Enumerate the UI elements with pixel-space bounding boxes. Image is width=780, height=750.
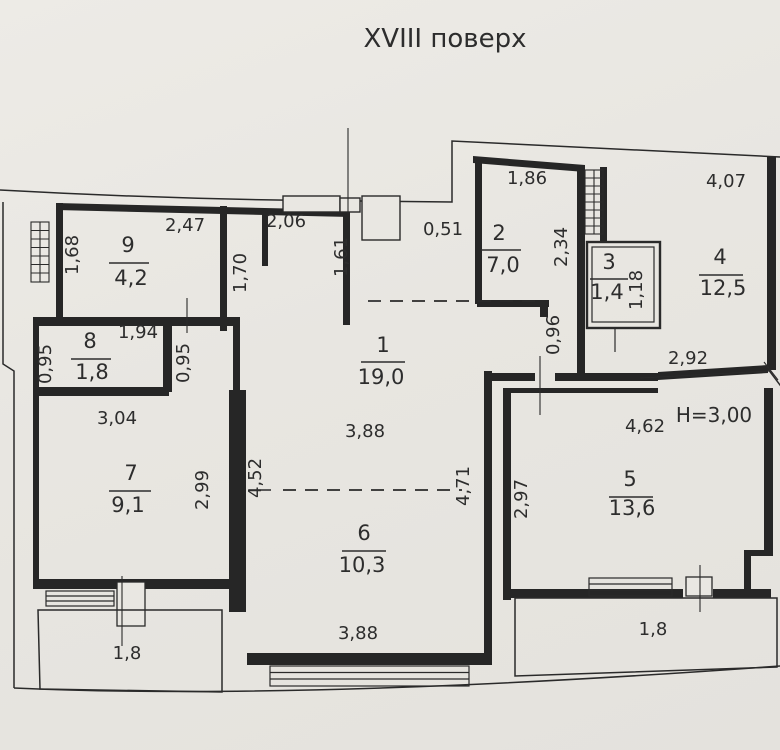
dim-label-d471: 4,71 xyxy=(453,466,474,506)
dim-label-d297: 2,97 xyxy=(511,479,532,519)
room-5-area: 13,6 xyxy=(609,496,656,520)
room-4-number: 4 xyxy=(713,245,726,269)
room-6-area: 10,3 xyxy=(339,553,386,577)
page-title: XVIII поверх xyxy=(364,24,527,54)
floor-plan-drawing: XVIII поверх xyxy=(0,0,780,750)
dim-label-d234: 2,34 xyxy=(551,227,572,267)
room-9-number: 9 xyxy=(121,233,134,257)
dimension-ticks xyxy=(122,128,778,646)
room-4-area: 12,5 xyxy=(700,276,747,300)
dim-label-d462: 4,62 xyxy=(625,416,665,437)
dim-label-d095r: 0,95 xyxy=(173,343,194,383)
balconies xyxy=(38,598,777,692)
dim-label-d206: 2,06 xyxy=(266,211,306,232)
dim-label-d407: 4,07 xyxy=(706,171,746,192)
room-5-number: 5 xyxy=(623,467,636,491)
room-3-area: 1,4 xyxy=(590,280,623,304)
room-7-area: 9,1 xyxy=(111,493,144,517)
shaft-hatch-left xyxy=(31,222,49,282)
dim-label-d051: 0,51 xyxy=(423,219,463,240)
dim-label-d161: 1,61 xyxy=(331,237,352,277)
dim-label-d304: 3,04 xyxy=(97,408,137,429)
dim-label-d247: 2,47 xyxy=(165,215,205,236)
dim-label-d170: 1,70 xyxy=(230,253,251,293)
room-8-area: 1,8 xyxy=(75,360,108,384)
dim-label-d168: 1,68 xyxy=(62,235,83,275)
dim-label-d194: 1,94 xyxy=(118,322,158,343)
dim-label-d388a: 3,88 xyxy=(345,421,385,442)
room-8-number: 8 xyxy=(83,329,96,353)
dim-label-d18r: 1,8 xyxy=(639,619,668,640)
floor-plan-page: XVIII поверх xyxy=(0,0,780,750)
dim-label-d095l: 0,95 xyxy=(35,344,56,384)
room-3-number: 3 xyxy=(602,250,615,274)
dim-label-d096: 0,96 xyxy=(543,315,564,355)
opening-dashes xyxy=(249,301,540,490)
dim-label-d118: 1,18 xyxy=(626,270,647,310)
dim-label-d452: 4,52 xyxy=(245,458,266,498)
room-9-area: 4,2 xyxy=(114,266,147,290)
dim-label-d299: 2,99 xyxy=(192,470,213,510)
floor-height-note: H=3,00 xyxy=(676,403,752,427)
dim-label-d18l: 1,8 xyxy=(113,643,142,664)
room-1-number: 1 xyxy=(376,333,389,357)
room-2-number: 2 xyxy=(492,221,505,245)
room-7-number: 7 xyxy=(124,461,137,485)
dim-label-d186: 1,86 xyxy=(507,168,547,189)
room-1-area: 19,0 xyxy=(358,365,405,389)
room-6-number: 6 xyxy=(357,521,370,545)
room-2-area: 7,0 xyxy=(486,253,519,277)
dim-label-d292: 2,92 xyxy=(668,348,708,369)
dim-label-d388b: 3,88 xyxy=(338,623,378,644)
